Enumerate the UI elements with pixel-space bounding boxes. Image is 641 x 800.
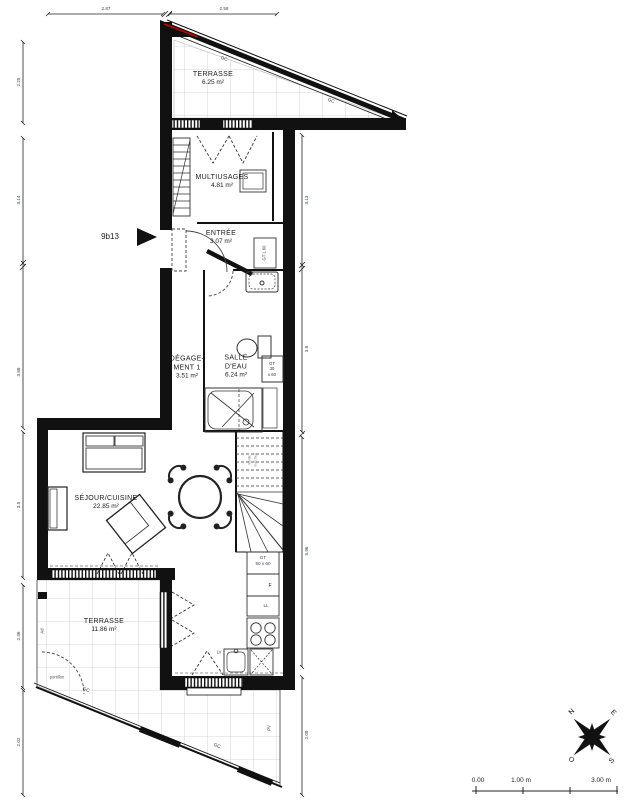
floor-plan: TERRASSE 6.25 m² MULTIUSAGES 4.81 m² ENT… xyxy=(0,0,641,800)
plan-drawing xyxy=(0,0,641,800)
room-name: MENT 1 xyxy=(170,364,204,373)
scale-bar xyxy=(472,786,618,794)
folding-door-icon xyxy=(197,136,229,163)
pv-annotation: PV xyxy=(266,725,271,731)
dining-chairs xyxy=(164,461,235,532)
side-table xyxy=(48,487,67,530)
entry-door-leaf xyxy=(172,229,186,271)
cabinet-door-icon xyxy=(172,592,194,618)
dimension-label: 3.8 xyxy=(304,346,310,352)
room-area: 22.85 m² xyxy=(75,503,138,511)
room-name: DÉGAGE- xyxy=(170,355,204,364)
scale-label-3m: 3.00 m xyxy=(591,777,611,785)
scale-label-0: 0.00 xyxy=(472,777,485,785)
room-area: 3.51 m² xyxy=(170,373,204,381)
stairs xyxy=(236,431,283,552)
dimension-label: 2.25 xyxy=(16,78,22,87)
dimension-label: 2.02 xyxy=(16,738,22,747)
gt-50x60-label: GT 50 x 60 xyxy=(255,555,270,567)
dimension-label: 5.96 xyxy=(304,547,310,556)
gt-line: 50 x 60 xyxy=(255,561,270,567)
room-label-terrace-bottom: TERRASSE 11.86 m² xyxy=(84,617,124,635)
cabinet-door-icon xyxy=(172,620,194,646)
room-name: SÉJOUR/CUISINE xyxy=(75,494,138,503)
bathroom-fixtures xyxy=(205,272,283,432)
washing-machine-label: LL xyxy=(263,603,268,609)
room-label-degagement: DÉGAGE- MENT 1 3.51 m² xyxy=(170,355,204,382)
room-label-salle-deau: SALLE D'EAU 6.24 m² xyxy=(224,354,247,381)
room-area: 4.81 m² xyxy=(196,182,249,190)
room-label-entree: ENTRÉE 3.07 m² xyxy=(206,229,236,247)
dimension-label: 3.88 xyxy=(16,368,22,377)
fridge-label: F xyxy=(268,583,271,590)
compass-rose-icon xyxy=(574,719,611,756)
gt-closet-label: GT L 60 xyxy=(261,246,266,261)
gate-label: portillon xyxy=(50,674,65,679)
gt-line: x 60 xyxy=(268,372,276,377)
dimension-label: 3.14 xyxy=(16,196,22,205)
room-area: 6.25 m² xyxy=(193,79,233,87)
room-name: D'EAU xyxy=(224,363,247,372)
room-area: 3.07 m² xyxy=(206,238,236,246)
scale-label-1m: 1.00 m xyxy=(511,777,531,785)
kitchen-fixtures xyxy=(172,552,283,675)
dimension-label: 3.13 xyxy=(304,196,310,205)
dining-table xyxy=(179,476,221,518)
entry-diagonal-wall xyxy=(207,251,252,274)
room-area: 6.24 m² xyxy=(224,372,247,380)
gt-30x60-label: GT 30 x 60 xyxy=(268,361,276,377)
ad-annotation: Ad xyxy=(39,628,44,633)
room-label-sejour-cuisine: SÉJOUR/CUISINE 22.85 m² xyxy=(75,494,138,512)
room-name: SALLE xyxy=(224,354,247,363)
room-label-multiusages: MULTIUSAGES 4.81 m² xyxy=(196,173,249,191)
dimension-label: 3.5 xyxy=(16,502,22,508)
room-name: TERRASSE xyxy=(84,617,124,626)
stairs-annotation: marches xyxy=(254,453,259,466)
room-label-terrace-top: TERRASSE 6.25 m² xyxy=(193,70,233,88)
dishwasher-label: LV xyxy=(217,649,222,654)
room-name: ENTRÉE xyxy=(206,229,236,238)
dimension-label: 2.36 xyxy=(16,632,22,641)
unit-label: 9b13 xyxy=(101,232,119,242)
room-name: TERRASSE xyxy=(193,70,233,79)
folding-door-icon xyxy=(229,136,257,163)
stairs-annotation: monte xyxy=(248,455,253,465)
dimension-label: 2.87 xyxy=(102,6,111,12)
dimension-label: 2.58 xyxy=(220,6,229,12)
entry-arrow-icon xyxy=(137,228,157,246)
room-area: 11.86 m² xyxy=(84,626,124,634)
bathroom-door-swing xyxy=(207,271,233,296)
room-name: MULTIUSAGES xyxy=(196,173,249,182)
dimension-label: 2.08 xyxy=(304,731,310,740)
technical-strip xyxy=(263,388,277,428)
fridge-box xyxy=(247,574,279,596)
